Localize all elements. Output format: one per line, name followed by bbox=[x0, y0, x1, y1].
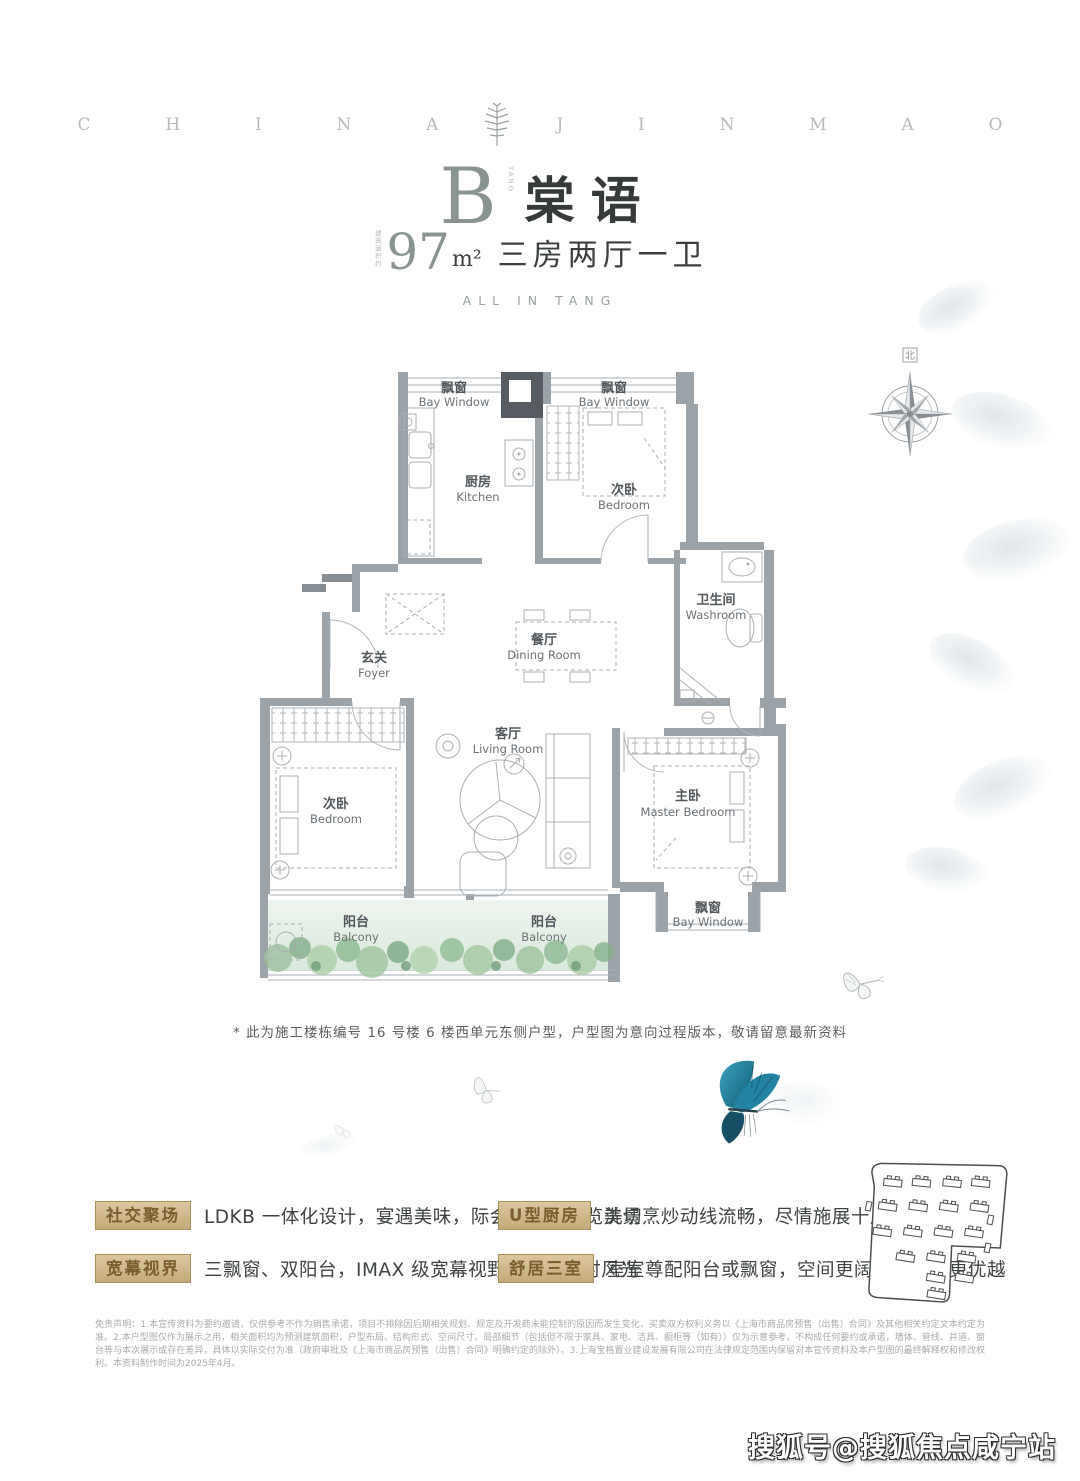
plan-name: 棠语 bbox=[525, 161, 657, 233]
butterfly-blue bbox=[695, 1050, 810, 1145]
floor-plan-drawing: 飘窗 Bay Window 飘窗 Bay Window 厨房 Kitchen 次… bbox=[256, 368, 790, 1013]
plan-note: * 此为施工楼栋编号 16 号楼 6 楼西单元东侧户型，户型图为意向过程版本，敬… bbox=[0, 1021, 1080, 1041]
svg-text:Dining Room: Dining Room bbox=[507, 648, 581, 662]
disclaimer-text: 免责声明：1.本宣传资料为要约邀请，仅供参考不作为销售承诺，项目不排除因后期相关… bbox=[95, 1319, 985, 1371]
butterfly-white-small bbox=[332, 1118, 358, 1141]
brand-header: CHINA JINMAO bbox=[0, 100, 1080, 150]
butterfly-white bbox=[838, 962, 886, 1004]
feature-badge: 舒居三室 bbox=[498, 1254, 594, 1283]
brand-jinmao: JINMAO bbox=[556, 115, 1077, 135]
jinmao-tree-icon bbox=[480, 100, 514, 150]
butterfly-white bbox=[468, 1072, 508, 1108]
svg-text:Bay Window: Bay Window bbox=[419, 395, 490, 409]
svg-text:Bedroom: Bedroom bbox=[310, 812, 362, 826]
label-balcony-left: 阳台 bbox=[343, 914, 369, 930]
site-plan-sketch bbox=[845, 1138, 1025, 1318]
svg-text:Bay Window: Bay Window bbox=[673, 915, 744, 929]
plan-spec: 建筑面积约 97 m² 三房两厅一卫 bbox=[0, 228, 1080, 276]
brand-china: CHINA bbox=[78, 115, 514, 135]
svg-text:Living Room: Living Room bbox=[473, 742, 544, 756]
plan-letter-note: TANG bbox=[507, 166, 515, 210]
petal-decoration bbox=[919, 621, 1026, 710]
label-bedroom-top: 次卧 bbox=[611, 482, 637, 498]
area-unit: m² bbox=[452, 247, 482, 272]
label-dining: 餐厅 bbox=[530, 632, 557, 648]
svg-text:Washroom: Washroom bbox=[686, 608, 747, 622]
label-bedroom-left: 次卧 bbox=[323, 796, 349, 812]
label-balcony-right: 阳台 bbox=[531, 914, 557, 930]
area-value: 97 bbox=[386, 228, 450, 276]
svg-text:北: 北 bbox=[905, 350, 915, 362]
svg-text:Balcony: Balcony bbox=[333, 930, 379, 944]
plan-title: B TANG 棠语 bbox=[0, 158, 1080, 236]
label-washroom: 卫生间 bbox=[696, 592, 735, 608]
label-bay-top-right: 飘窗 bbox=[601, 380, 627, 396]
feature-badge: U型厨房 bbox=[498, 1201, 591, 1230]
floor-plan: 飘窗 Bay Window 飘窗 Bay Window 厨房 Kitchen 次… bbox=[256, 368, 790, 1017]
petal-decoration bbox=[957, 509, 1080, 592]
svg-text:Bay Window: Bay Window bbox=[579, 395, 650, 409]
poster-page: CHINA JINMAO B TANG 棠语 建筑面积约 97 m² 三房两厅一… bbox=[0, 0, 1080, 1481]
label-kitchen: 厨房 bbox=[465, 474, 491, 490]
label-foyer: 玄关 bbox=[361, 650, 387, 666]
feature-badge: 宽幕视界 bbox=[95, 1254, 191, 1283]
area-prefix-label: 建筑面积约 bbox=[372, 230, 382, 270]
label-bay-top-left: 飘窗 bbox=[441, 380, 467, 396]
plan-subtitle-en: ALL IN TANG bbox=[0, 293, 1080, 308]
watermark-sohu: 搜狐号@搜狐焦点咸宁站 bbox=[748, 1426, 1056, 1465]
label-bay-bottom: 飘窗 bbox=[695, 900, 721, 916]
svg-text:Balcony: Balcony bbox=[521, 930, 567, 944]
petal-decoration bbox=[909, 269, 1005, 346]
petal-decoration bbox=[901, 840, 993, 902]
svg-text:Kitchen: Kitchen bbox=[456, 490, 499, 504]
room-labels: 飘窗 Bay Window 飘窗 Bay Window 厨房 Kitchen 次… bbox=[310, 380, 746, 944]
label-master: 主卧 bbox=[675, 788, 701, 804]
svg-text:Master Bedroom: Master Bedroom bbox=[641, 805, 736, 819]
petal-decoration bbox=[946, 744, 1063, 832]
feature-badge: 社交聚场 bbox=[95, 1201, 191, 1230]
svg-text:Foyer: Foyer bbox=[358, 666, 390, 680]
room-count-text: 三房两厅一卫 bbox=[498, 230, 708, 274]
svg-text:Bedroom: Bedroom bbox=[598, 498, 650, 512]
compass-icon: 北 bbox=[855, 346, 965, 464]
label-living: 客厅 bbox=[495, 726, 521, 742]
